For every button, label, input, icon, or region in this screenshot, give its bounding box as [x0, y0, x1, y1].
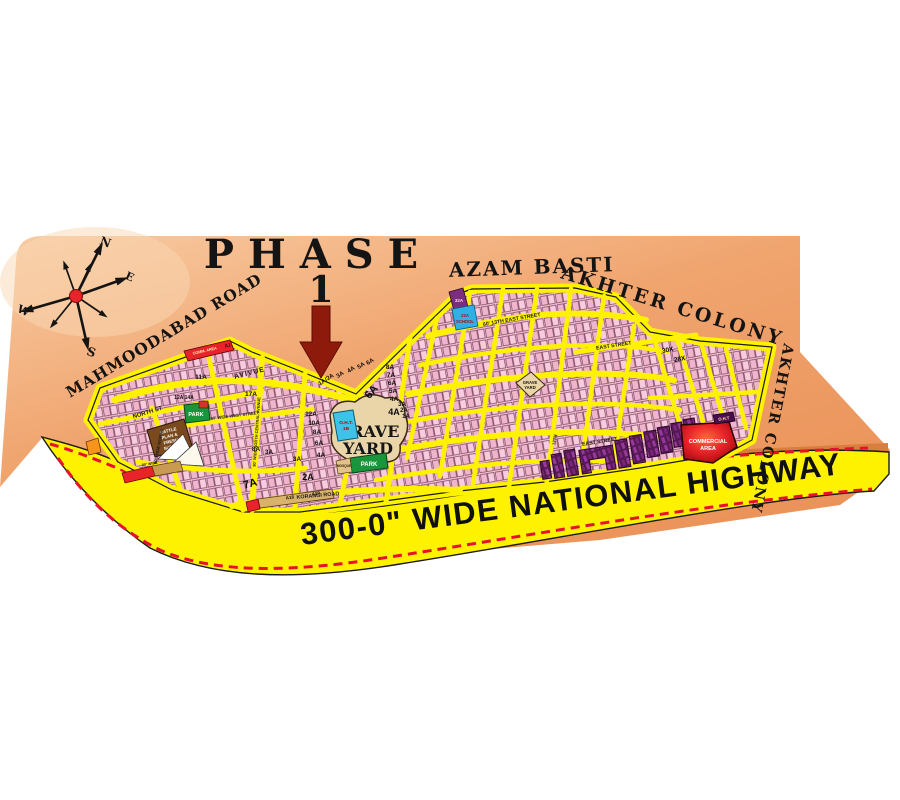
- land-highlight: [0, 227, 190, 337]
- sector-label: 1A: [402, 414, 410, 420]
- mosque-label: MOSQUE: [337, 464, 351, 468]
- compass-center: [70, 290, 83, 303]
- sector-label: 3A: [265, 449, 274, 456]
- grave-yard-small-label: YARD: [524, 385, 535, 390]
- sector-label: 10A: [308, 420, 320, 427]
- sector-label: 8A: [386, 364, 395, 371]
- park-left-mosque: [199, 401, 208, 408]
- map-image: 300-0" WIDE NATIONAL HIGHWAY: [0, 0, 900, 800]
- sector-label: 11A: [195, 374, 207, 381]
- oht-label: 1B: [343, 426, 350, 432]
- phase-number: 1: [308, 269, 333, 311]
- oht-label: O.H.T.: [339, 420, 353, 426]
- sector-label: 4A: [317, 452, 326, 459]
- sector-label: 12A: [305, 411, 317, 418]
- map-root: 300-0" WIDE NATIONAL HIGHWAY: [0, 0, 900, 800]
- sector-label: 3A: [293, 456, 302, 463]
- park-left-label: PARK: [188, 412, 203, 418]
- park-center-label: PARK: [361, 462, 378, 468]
- sector-label: 7A: [387, 372, 396, 379]
- sector-label: 17A: [245, 391, 257, 398]
- sector-label: 2A: [302, 472, 314, 482]
- sector-label: 6A: [315, 440, 324, 447]
- sector-label: 4A: [388, 407, 400, 417]
- sector-label: 8A: [252, 446, 261, 453]
- sector-label: 5A: [389, 388, 398, 395]
- sector-label: 12A 14A: [174, 395, 194, 401]
- school-32a-label: 32A: [455, 298, 464, 303]
- commercial-area-label: AREA: [700, 446, 716, 452]
- sector-label: 6A: [388, 380, 397, 387]
- school-22a-label: 22A: [461, 313, 469, 318]
- sector-label: 8A: [313, 429, 322, 436]
- school-22a-label: SCHOOL: [456, 319, 474, 324]
- commercial-area-label: COMMERCIAL: [689, 439, 728, 445]
